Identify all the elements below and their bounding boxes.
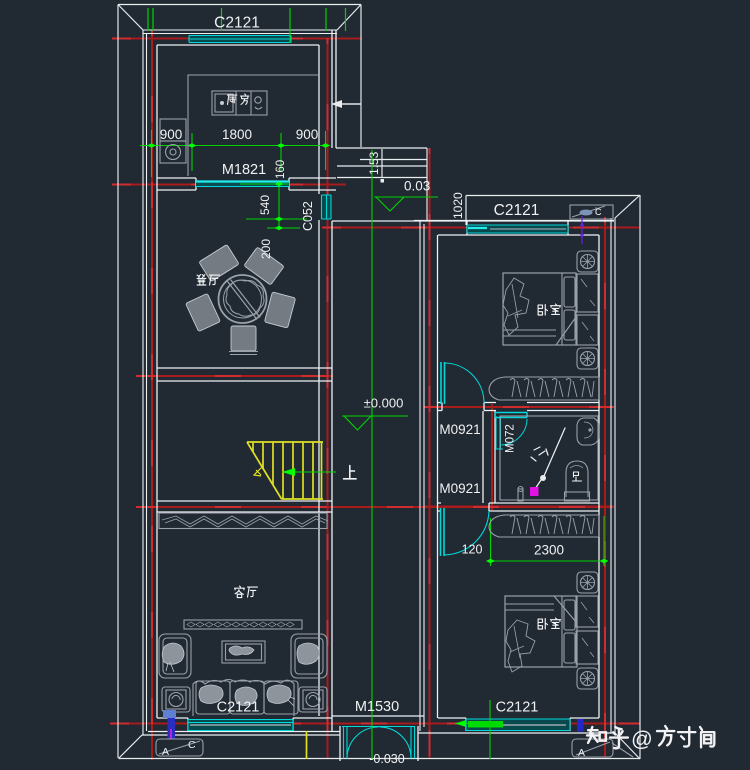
svg-text:±0.000: ±0.000 bbox=[364, 396, 404, 411]
svg-text:1.53: 1.53 bbox=[367, 151, 381, 175]
svg-text:C: C bbox=[188, 739, 196, 751]
svg-text:540: 540 bbox=[258, 195, 272, 215]
svg-text:0.03: 0.03 bbox=[404, 179, 430, 194]
svg-text:M1530: M1530 bbox=[355, 699, 399, 715]
svg-text:200: 200 bbox=[259, 239, 273, 259]
svg-text:2300: 2300 bbox=[534, 543, 564, 558]
svg-text:160: 160 bbox=[275, 160, 287, 179]
svg-text:M0921: M0921 bbox=[439, 481, 480, 496]
svg-text:120: 120 bbox=[462, 543, 483, 557]
svg-text:A: A bbox=[578, 747, 585, 759]
svg-text:M1821: M1821 bbox=[222, 162, 266, 178]
svg-text:900: 900 bbox=[296, 127, 319, 142]
svg-text:A: A bbox=[162, 746, 169, 758]
svg-text:C2121: C2121 bbox=[494, 202, 540, 219]
svg-text:C2121: C2121 bbox=[217, 700, 260, 716]
svg-text:C052: C052 bbox=[301, 201, 315, 231]
svg-text:M0921: M0921 bbox=[439, 422, 480, 437]
svg-text:C2121: C2121 bbox=[496, 700, 539, 716]
svg-text:1800: 1800 bbox=[222, 127, 252, 142]
svg-text:@: @ bbox=[631, 727, 653, 751]
svg-text:900: 900 bbox=[160, 127, 183, 142]
svg-text:C2121: C2121 bbox=[214, 15, 260, 32]
svg-text:C: C bbox=[595, 207, 602, 217]
svg-text:M072: M072 bbox=[505, 424, 517, 453]
svg-text:-0.030: -0.030 bbox=[369, 752, 404, 766]
svg-text:1020: 1020 bbox=[451, 192, 465, 219]
